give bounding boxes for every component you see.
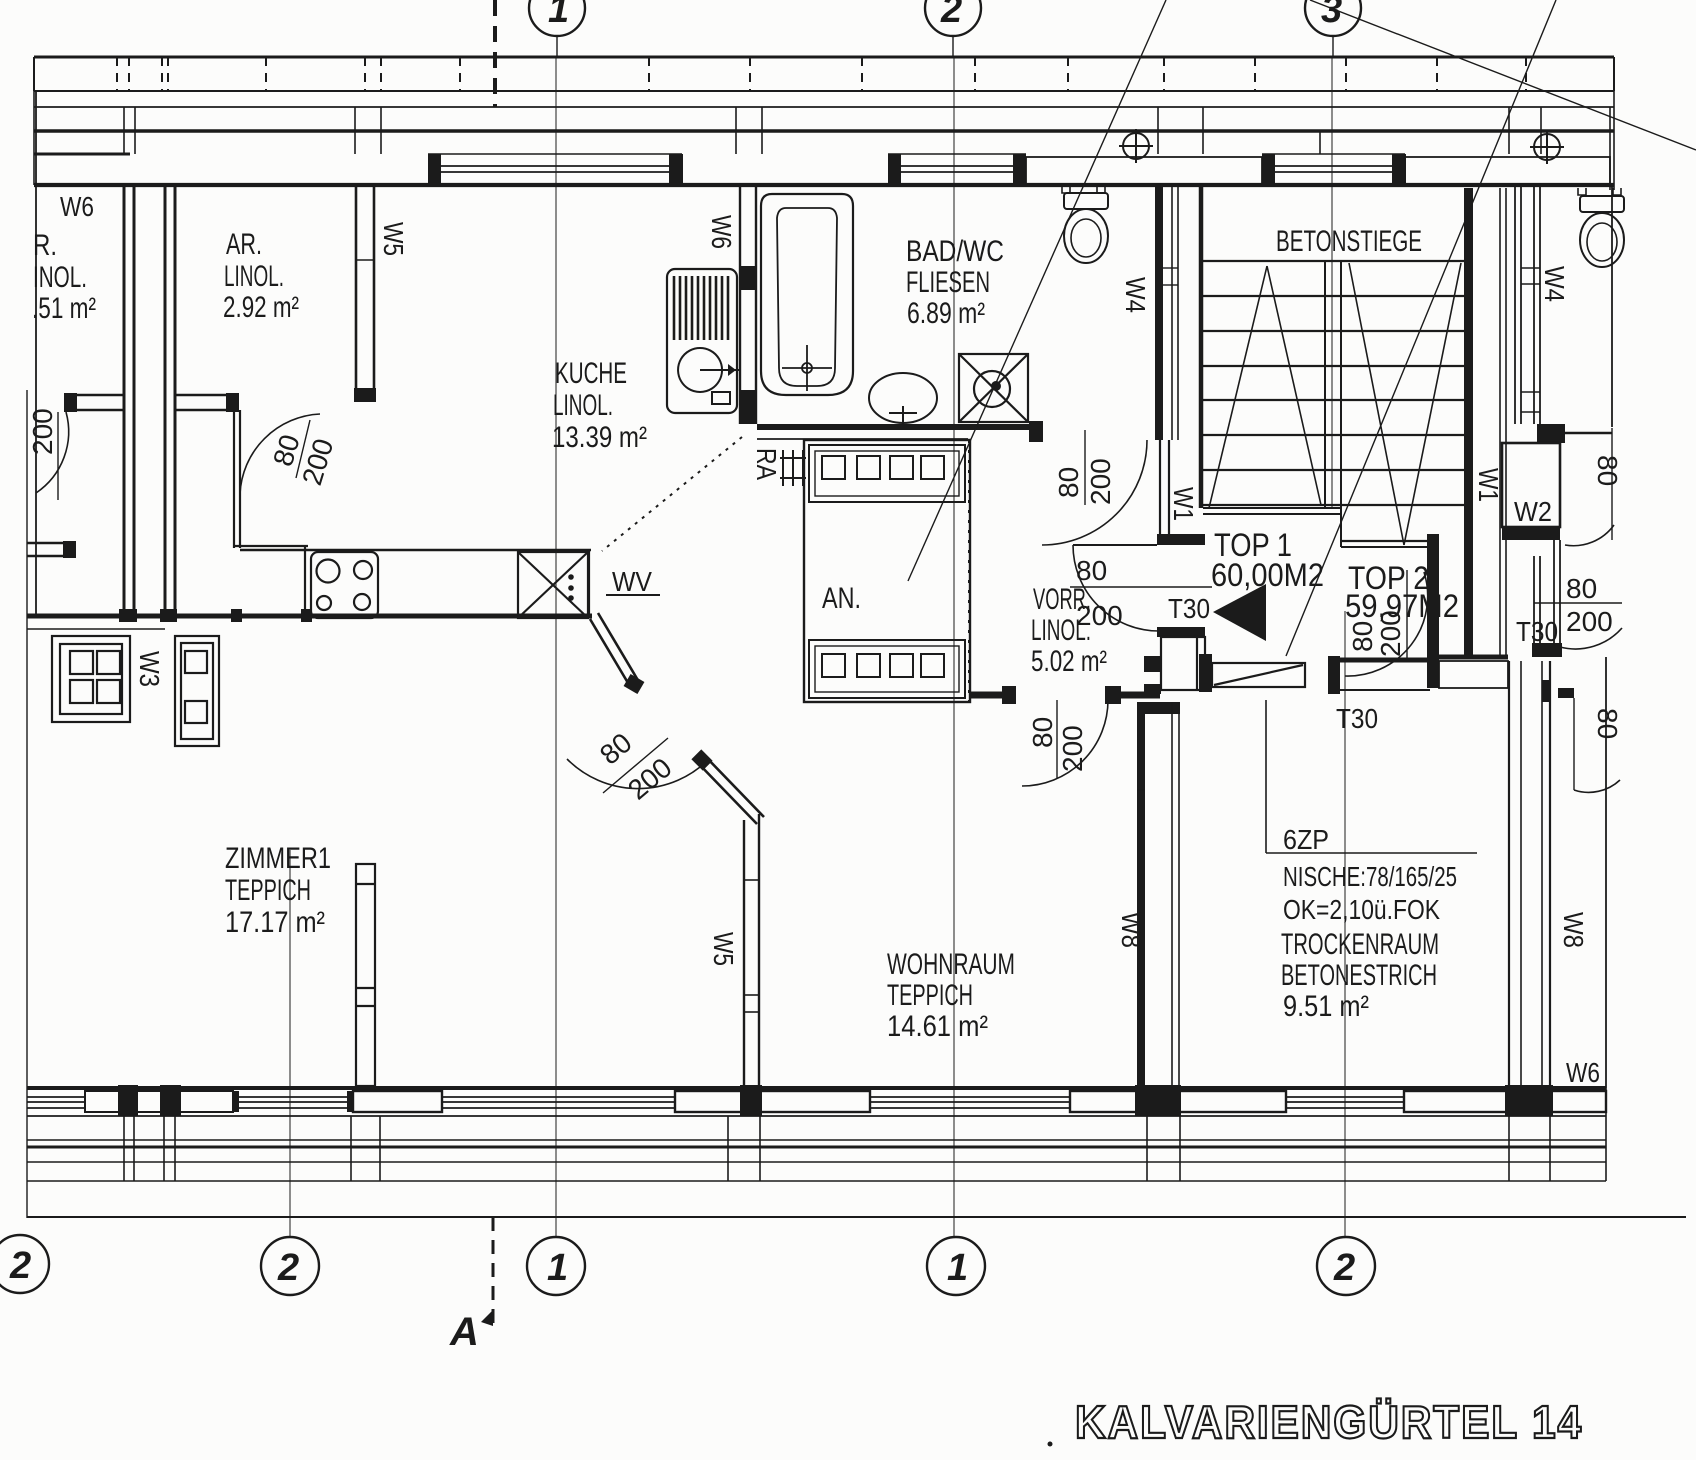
- svg-text:W1: W1: [1473, 468, 1504, 502]
- svg-text:13.39 m²: 13.39 m²: [552, 421, 647, 454]
- svg-text:T30: T30: [1336, 703, 1378, 734]
- svg-text:LINOL.: LINOL.: [224, 260, 284, 293]
- svg-text:80: 80: [1027, 717, 1058, 748]
- svg-text:R.: R.: [33, 229, 57, 262]
- svg-text:W6: W6: [60, 191, 94, 222]
- svg-text:WV: WV: [612, 566, 652, 597]
- svg-text:ZIMMER1: ZIMMER1: [225, 842, 331, 875]
- svg-text:W3: W3: [134, 651, 165, 687]
- svg-text:INOL.: INOL.: [33, 261, 87, 294]
- svg-text:2: 2: [277, 1247, 299, 1289]
- svg-text:2.92 m²: 2.92 m²: [223, 291, 299, 324]
- svg-text:6ZP: 6ZP: [1283, 824, 1329, 855]
- svg-text:KUCHE: KUCHE: [555, 357, 627, 390]
- svg-text:AR.: AR.: [226, 228, 262, 261]
- svg-text:9.51 m²: 9.51 m²: [1283, 990, 1369, 1023]
- svg-text:W5: W5: [378, 222, 409, 256]
- svg-text:RA: RA: [751, 448, 782, 480]
- svg-text:W4: W4: [1120, 277, 1151, 313]
- svg-text:LINOL.: LINOL.: [553, 389, 613, 422]
- svg-text:80: 80: [1592, 455, 1623, 486]
- svg-text:200: 200: [1566, 606, 1613, 637]
- svg-text:W1: W1: [1168, 487, 1199, 521]
- svg-text:80: 80: [1053, 467, 1084, 498]
- svg-text:80: 80: [1566, 573, 1597, 604]
- svg-text:KALVARIENGÜRTEL 14: KALVARIENGÜRTEL 14: [1075, 1396, 1583, 1448]
- svg-text:TROCKENRAUM: TROCKENRAUM: [1281, 928, 1439, 961]
- svg-text:5.02 m²: 5.02 m²: [1031, 645, 1107, 678]
- svg-text:NISCHE:78/165/25: NISCHE:78/165/25: [1283, 861, 1457, 892]
- svg-text:W8: W8: [1116, 912, 1147, 948]
- svg-text:3: 3: [1321, 0, 1342, 31]
- svg-text:200: 200: [27, 408, 58, 455]
- svg-text:2: 2: [940, 0, 962, 31]
- svg-text:60,00M2: 60,00M2: [1211, 557, 1324, 593]
- svg-text:TEPPICH: TEPPICH: [887, 979, 973, 1012]
- svg-text:2: 2: [9, 1245, 31, 1287]
- svg-text:17.17 m²: 17.17 m²: [225, 906, 325, 939]
- svg-text:BETONESTRICH: BETONESTRICH: [1281, 959, 1437, 992]
- svg-text:6.89 m²: 6.89 m²: [907, 297, 985, 330]
- svg-text:2: 2: [1333, 1247, 1355, 1289]
- svg-text:W5: W5: [708, 932, 739, 966]
- svg-text:80: 80: [1076, 555, 1107, 586]
- svg-text:200: 200: [1057, 725, 1088, 772]
- svg-text:WOHNRAUM: WOHNRAUM: [887, 948, 1015, 981]
- svg-text:200: 200: [1085, 458, 1116, 505]
- svg-text:14.61 m²: 14.61 m²: [887, 1010, 988, 1043]
- svg-text:1: 1: [548, 0, 569, 31]
- svg-text:FLIESEN: FLIESEN: [906, 266, 990, 299]
- svg-text:W6: W6: [706, 215, 737, 249]
- svg-text:T30: T30: [1168, 593, 1210, 624]
- svg-text:W8: W8: [1558, 912, 1589, 948]
- svg-text:BETONSTIEGE: BETONSTIEGE: [1276, 225, 1422, 258]
- svg-text:200: 200: [1375, 610, 1406, 657]
- svg-text:80: 80: [1347, 621, 1378, 652]
- svg-text:TEPPICH: TEPPICH: [225, 874, 311, 907]
- svg-text:A: A: [449, 1310, 479, 1354]
- svg-text:W6: W6: [1566, 1057, 1600, 1088]
- svg-text:BAD/WC: BAD/WC: [906, 235, 1004, 268]
- svg-text:.51 m²: .51 m²: [32, 292, 96, 325]
- svg-text:T30: T30: [1516, 616, 1558, 647]
- svg-text:1: 1: [547, 1247, 568, 1289]
- svg-text:AN.: AN.: [822, 582, 861, 615]
- svg-text:1: 1: [947, 1247, 968, 1289]
- svg-text:W2: W2: [1514, 496, 1552, 527]
- svg-text:LINOL.: LINOL.: [1031, 614, 1091, 647]
- svg-text:OK=2,10ü.FOK: OK=2,10ü.FOK: [1283, 894, 1440, 925]
- svg-text:80: 80: [1592, 708, 1623, 739]
- svg-text:W4: W4: [1539, 266, 1570, 302]
- svg-text:VORR.: VORR.: [1033, 583, 1091, 616]
